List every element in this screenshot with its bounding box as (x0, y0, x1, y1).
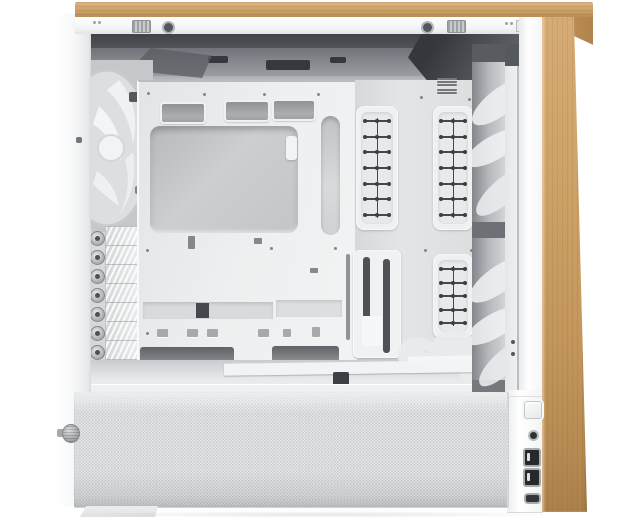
ladder-rung (441, 282, 465, 284)
tray-slot (207, 329, 218, 337)
frame-screw-hole (511, 340, 515, 344)
rail-ladder-pattern (438, 112, 468, 224)
rim-screw (98, 21, 101, 24)
ladder-rung (441, 151, 465, 153)
screw-hole (468, 98, 471, 101)
rail-ladder-pattern (361, 112, 393, 224)
bracket-tab (362, 316, 382, 346)
ladder-rung (365, 151, 389, 153)
usb-a-port-2 (523, 468, 541, 487)
pci-thumbscrew (90, 269, 105, 284)
ladder-rung (365, 214, 389, 216)
top-cable-slot (330, 57, 346, 63)
rim-screw (93, 21, 96, 24)
tray-slot (157, 329, 168, 337)
pci-slot-covers (105, 226, 138, 374)
standoff-hole (317, 93, 320, 96)
tray-slot (258, 329, 269, 337)
vent-slit (437, 78, 457, 80)
tray-knockout (310, 268, 318, 273)
rim-screw (505, 22, 508, 25)
ladder-rung (365, 198, 389, 200)
screw-hole (424, 249, 427, 252)
top-cable-slot (266, 60, 310, 70)
cable-grommet (160, 102, 206, 124)
ladder-rung (441, 295, 465, 297)
front-panel-seam (507, 396, 543, 397)
panel-latch (132, 20, 151, 33)
ladder-rung (365, 136, 389, 138)
shroud-thumbscrew (62, 424, 80, 443)
vent-slit (437, 89, 457, 91)
screw-hole (420, 96, 423, 99)
pci-thumbscrew (90, 231, 105, 246)
rail-ladder-pattern (438, 260, 468, 332)
rim-hole (162, 21, 175, 34)
frame-screw-hole (511, 352, 515, 356)
cable-grommet (224, 100, 270, 122)
vent-slit (437, 81, 457, 83)
rail-side-slot (346, 254, 350, 340)
standoff-hole (334, 247, 337, 250)
panel-latch (447, 20, 466, 33)
standoff-hole (263, 93, 266, 96)
mesh-lighting (74, 392, 507, 506)
pci-thumbscrew (90, 250, 105, 265)
audio-jack (528, 430, 539, 441)
cutout-tab (286, 136, 297, 160)
rim-screw (510, 22, 513, 25)
ladder-rung (365, 167, 389, 169)
pci-thumbscrew (90, 307, 105, 322)
ladder-rung (365, 120, 389, 122)
ladder-rung (441, 214, 465, 216)
cable-tie-rail (433, 254, 473, 338)
tray-recess-slot (196, 303, 209, 318)
power-button (524, 401, 542, 419)
ladder-rung (365, 183, 389, 185)
pci-thumbscrew (90, 326, 105, 341)
tray-recess (276, 300, 342, 317)
ladder-rung (441, 167, 465, 169)
vent-slit (437, 84, 457, 86)
usb-a-port-1 (523, 448, 541, 467)
standoff-hole (147, 92, 150, 95)
pci-thumbscrew (90, 345, 105, 360)
tray-slot (312, 327, 320, 337)
vertical-cable-slot (321, 116, 340, 235)
product-photo-pc-case (0, 0, 636, 520)
standoff-hole (146, 332, 149, 335)
ladder-rung (441, 198, 465, 200)
tray-knockout (254, 238, 262, 244)
cpu-cooler-cutout (150, 126, 298, 233)
drop-shadow (70, 511, 570, 518)
front-frame-strip (519, 17, 543, 390)
rear-panel-slot (76, 137, 82, 143)
tray-slot (187, 329, 198, 337)
pci-thumbscrew (90, 288, 105, 303)
ladder-rung (441, 183, 465, 185)
ladder-rung (441, 120, 465, 122)
standoff-hole (203, 93, 206, 96)
cable-tie-rail (433, 106, 473, 230)
standoff-hole (270, 247, 273, 250)
tray-slot (283, 329, 291, 337)
cable-tie-rail (356, 106, 398, 230)
ladder-rung (441, 322, 465, 324)
ladder-rung (441, 268, 465, 270)
ladder-rung (441, 309, 465, 311)
pci-thumbscrews (90, 231, 105, 371)
wood-front-panel (542, 17, 587, 512)
usb-c-port (524, 493, 541, 504)
rim-hole (421, 21, 434, 34)
bracket-slot (383, 259, 390, 353)
vent-slit (437, 92, 457, 94)
ladder-rung (441, 136, 465, 138)
wood-top-trim (75, 2, 593, 17)
cable-grommet (272, 99, 316, 121)
standoff-hole (146, 249, 149, 252)
tray-knockout (188, 236, 195, 249)
